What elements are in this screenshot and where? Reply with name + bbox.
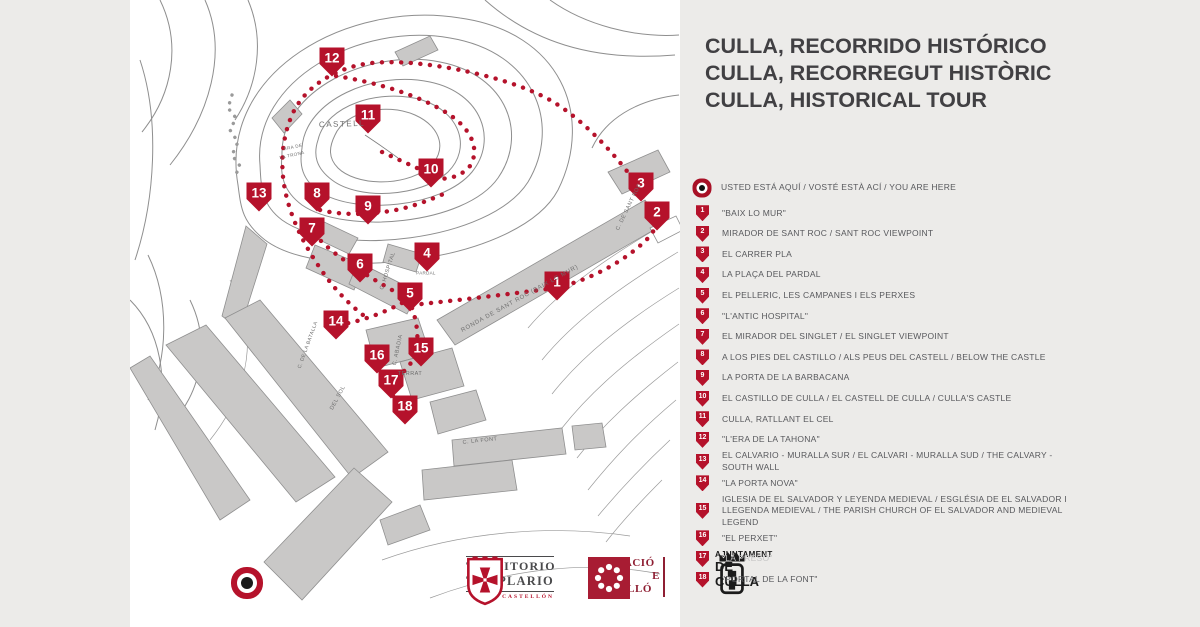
legend-item-you-are-here: USTED ESTÁ AQUÍ / VOSTÉ ESTÀ ACÍ / YOU A… [696,175,1086,200]
legend-label: "L'ANTIC HOSPITAL" [722,311,808,322]
legend-label: "L'ERA DE LA TAHONA" [722,434,820,445]
legend-item-8: 8 A LOS PIES DEL CASTILLO / ALS PEUS DEL… [696,347,1086,368]
castle-pointer-line [365,135,398,158]
legend-item-7: 7 EL MIRADOR DEL SINGLET / EL SINGLET VI… [696,327,1086,348]
legend-item-16: 16 "EL PERXET" [696,528,1086,549]
legend-shield-icon: 13 [696,454,709,470]
legend-label: EL CASTILLO DE CULLA / EL CASTELL DE CUL… [722,393,1011,404]
legend-shield-icon: 12 [696,432,709,448]
legend-shield-icon: 10 [696,391,709,407]
legend-item-14: 14 "LA PORTA NOVA" [696,473,1086,494]
legend-shield-icon: 4 [696,267,709,283]
street-label: PARDAL [416,271,435,276]
street-label: TERRAT [398,371,423,377]
street-label: CASTELL [319,119,365,130]
legend: USTED ESTÁ AQUÍ / VOSTÉ ESTÀ ACÍ / YOU A… [696,175,1086,590]
legend-shield-icon: 7 [696,329,709,345]
legend-shield-icon: 3 [696,246,709,262]
diputacio-emblem-icon [588,557,630,599]
legend-item-1: 1 "BAIX LO MUR" [696,203,1086,224]
legend-label: "PORTAL DE LA FONT" [722,574,818,585]
legend-item-4: 4 LA PLAÇA DEL PARDAL [696,265,1086,286]
legend-label: "BAIX LO MUR" [722,208,786,219]
legend-label: MIRADOR DE SANT ROC / SANT ROC VIEWPOINT [722,228,933,239]
territorio-templario-logo: TERRITORIO TEMPLARIO CASTELLÓN [466,556,554,600]
legend-shield-icon: 16 [696,530,709,546]
legend-item-15: 15 IGLESIA DE EL SALVADOR Y LEYENDA MEDI… [696,494,1086,528]
legend-item-2: 2 MIRADOR DE SANT ROC / SANT ROC VIEWPOI… [696,224,1086,245]
leaflet-page: 123456789101112131415161718 CASTELLERA D… [0,0,1200,627]
legend-item-9: 9 LA PORTA DE LA BARBACANA [696,368,1086,389]
diputacio-castello-logo: DIPUTACIÓ D E CASTELLÓ [588,557,665,597]
legend-item-6: 6 "L'ANTIC HOSPITAL" [696,306,1086,327]
legend-shield-icon: 9 [696,370,709,386]
legend-label: A LOS PIES DEL CASTILLO / ALS PEUS DEL C… [722,352,1046,363]
legend-item-13: 13 EL CALVARIO - MURALLA SUR / EL CALVAR… [696,450,1086,473]
legend-shield-icon: 15 [696,503,709,519]
legend-label: LA PLAÇA DEL PARDAL [722,269,821,280]
legend-shield-icon: 17 [696,551,709,567]
buildings [130,36,680,600]
legend-item-5: 5 EL PELLERIC, LES CAMPANES I ELS PERXES [696,285,1086,306]
legend-shield-icon: 1 [696,205,709,221]
legend-item-3: 3 EL CARRER PLA [696,244,1086,265]
title-line-es: CULLA, RECORRIDO HISTÓRICO [705,33,1051,60]
legend-item-17: 17 "LA PRESÓ" [696,549,1086,570]
legend-label: EL CALVARIO - MURALLA SUR / EL CALVARI -… [722,450,1067,473]
legend-item-18: 18 "PORTAL DE LA FONT" [696,569,1086,590]
title-line-ca: CULLA, RECORREGUT HISTÒRIC [705,60,1051,87]
legend-label: USTED ESTÁ AQUÍ / VOSTÉ ESTÀ ACÍ / YOU A… [721,182,956,193]
legend-shield-icon: 11 [696,411,709,427]
map-svg [130,0,680,627]
map-canvas: 123456789101112131415161718 CASTELLERA D… [130,0,680,627]
legend-label: EL MIRADOR DEL SINGLET / EL SINGLET VIEW… [722,331,949,342]
page-title: CULLA, RECORRIDO HISTÓRICO CULLA, RECORR… [705,33,1051,114]
legend-label: "LA PORTA NOVA" [722,478,798,489]
legend-label: IGLESIA DE EL SALVADOR Y LEYENDA MEDIEVA… [722,494,1067,528]
legend-item-10: 10 EL CASTILLO DE CULLA / EL CASTELL DE … [696,388,1086,409]
legend-label: "EL PERXET" [722,533,777,544]
legend-shield-icon: 14 [696,475,709,491]
legend-label: EL CARRER PLA [722,249,792,260]
diputacio-line2b: E [652,570,660,583]
legend-shield-icon: 2 [696,226,709,242]
legend-item-11: 11 CULLA, RATLLANT EL CEL [696,409,1086,430]
templar-shield-icon [466,556,504,606]
legend-label: LA PORTA DE LA BARBACANA [722,372,850,383]
legend-shield-icon: 5 [696,288,709,304]
legend-shield-icon: 8 [696,349,709,365]
title-line-en: CULLA, HISTORICAL TOUR [705,87,1051,114]
legend-label: "LA PRESÓ" [722,553,773,564]
you-are-here-marker [241,577,253,589]
you-are-here-icon [699,185,705,191]
legend-shield-icon: 6 [696,308,709,324]
legend-shield-icon: 18 [696,572,709,588]
legend-item-12: 12 "L'ERA DE LA TAHONA" [696,430,1086,451]
legend-label: CULLA, RATLLANT EL CEL [722,414,834,425]
legend-label: EL PELLERIC, LES CAMPANES I ELS PERXES [722,290,915,301]
